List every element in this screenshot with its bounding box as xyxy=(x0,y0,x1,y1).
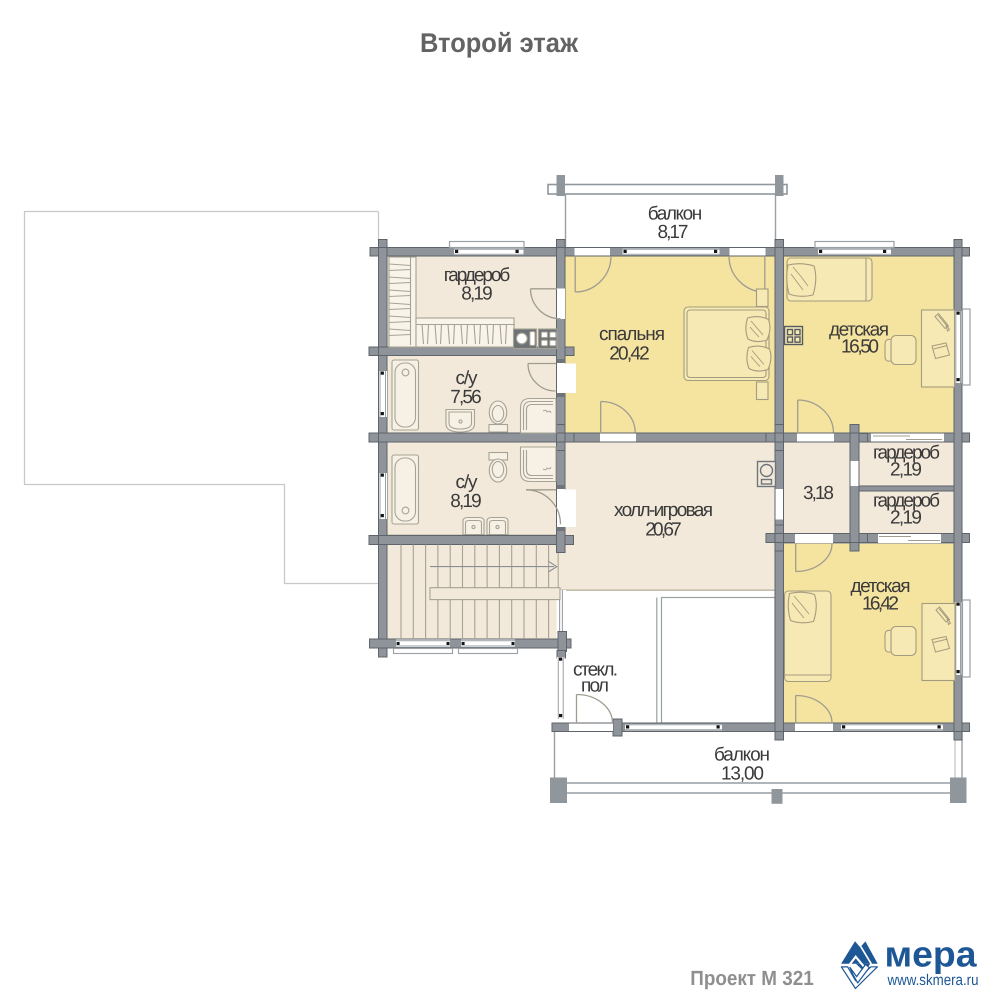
svg-text:Второй этаж: Второй этаж xyxy=(420,28,579,58)
svg-text:с/у: с/у xyxy=(456,368,479,389)
svg-text:20,67: 20,67 xyxy=(645,520,682,541)
svg-text:8,19: 8,19 xyxy=(450,491,482,512)
svg-text:2,19: 2,19 xyxy=(890,460,922,481)
svg-text:www.skmera.ru: www.skmera.ru xyxy=(887,972,979,989)
svg-text:8,17: 8,17 xyxy=(658,222,689,243)
svg-text:Проект М 321: Проект М 321 xyxy=(690,967,814,990)
svg-text:балкон: балкон xyxy=(714,745,770,766)
svg-text:16,50: 16,50 xyxy=(841,337,879,358)
svg-text:16,42: 16,42 xyxy=(862,594,899,615)
svg-text:20,42: 20,42 xyxy=(609,344,650,365)
svg-text:пол: пол xyxy=(581,676,609,697)
svg-text:с/у: с/у xyxy=(456,472,479,493)
svg-text:спальня: спальня xyxy=(599,324,665,345)
svg-text:7,56: 7,56 xyxy=(450,387,482,408)
svg-text:мера: мера xyxy=(885,934,978,975)
svg-text:13,00: 13,00 xyxy=(721,764,764,785)
svg-text:2,19: 2,19 xyxy=(890,508,922,529)
svg-text:3,18: 3,18 xyxy=(803,483,834,504)
svg-text:холл-игровая: холл-игровая xyxy=(614,500,713,521)
svg-text:8,19: 8,19 xyxy=(461,284,493,305)
